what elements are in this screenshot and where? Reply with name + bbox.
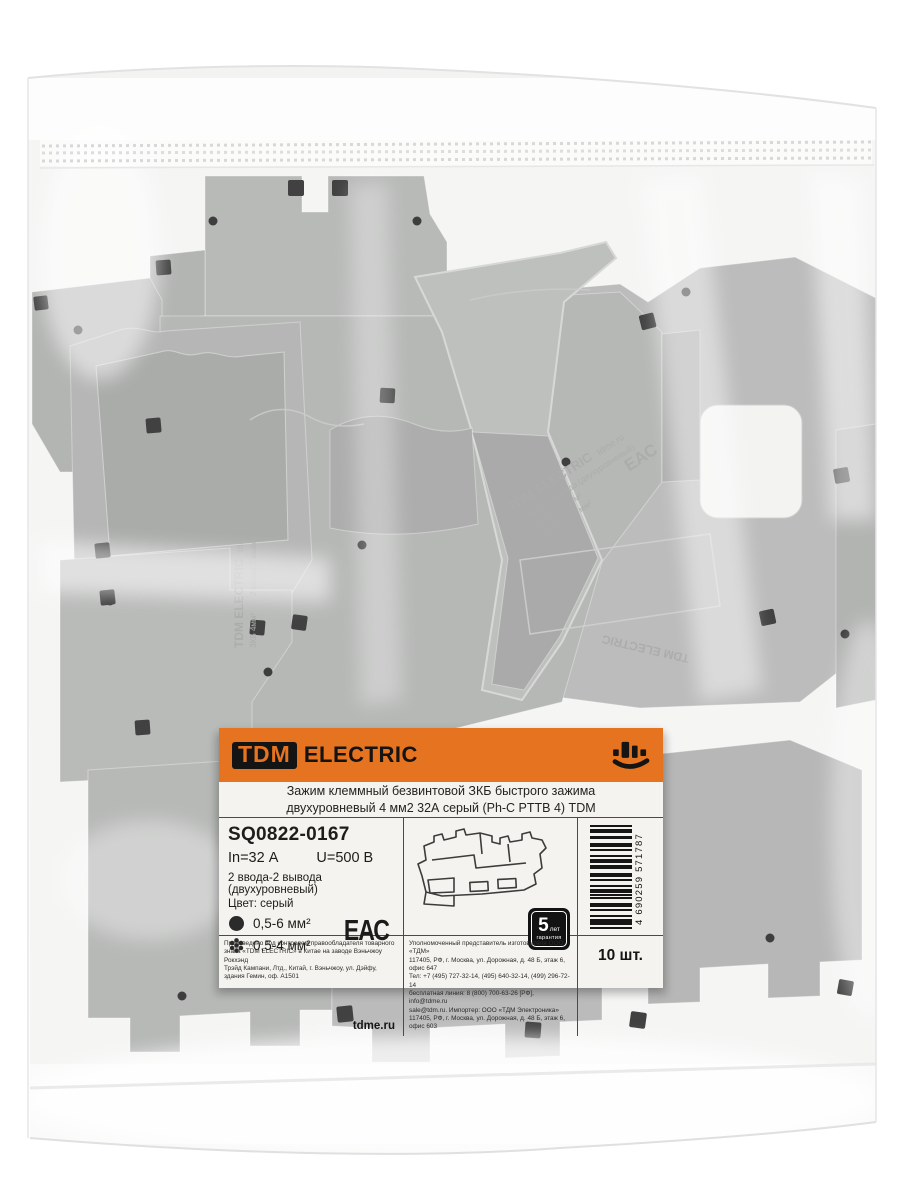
crimp-seal bbox=[40, 139, 874, 168]
color-text: Цвет: серый bbox=[228, 898, 394, 910]
label-specs-column: SQ0822-0167 In=32 А U=500 В 2 ввода-2 вы… bbox=[219, 818, 404, 954]
tdm-logo-text: ELECTRIC bbox=[304, 742, 418, 768]
label-barcode-column: 4 690259 571787 bbox=[578, 818, 663, 954]
product-photo: TDM ELECTRIC tdme.ru ЗКБ 4мм² 2 ввода-2 … bbox=[0, 0, 900, 1200]
config-text: 2 ввода-2 вывода (двухуровневый) bbox=[228, 872, 394, 896]
barcode: 4 690259 571787 bbox=[590, 825, 650, 933]
barcode-bars bbox=[590, 825, 632, 933]
product-title: Зажим клеммный безвинтовой ЗКБ быстрого … bbox=[219, 782, 663, 817]
website: tdme.ru bbox=[353, 1020, 395, 1032]
wire-range-solid: 0,5-6 мм² bbox=[253, 916, 311, 931]
tdm-logo-box: TDM bbox=[232, 742, 297, 769]
importer-note: Уполномоченный представитель изготовител… bbox=[404, 936, 578, 1036]
bag-bottom-fold bbox=[30, 1064, 876, 1154]
tdm-logo: TDM ELECTRIC bbox=[232, 742, 418, 769]
label-drawing-column: 5 лет гарантия bbox=[404, 818, 578, 954]
product-title-line1: Зажим клеммный безвинтовой ЗКБ быстрого … bbox=[219, 783, 663, 800]
rated-current: In=32 А bbox=[228, 850, 278, 866]
solid-wire-icon bbox=[228, 915, 245, 932]
sku-code: SQ0822-0167 bbox=[228, 824, 394, 846]
barcode-digits: 4 690259 571787 bbox=[634, 825, 648, 933]
product-title-line2: двухуровневый 4 мм2 32А серый (Ph-C PTTB… bbox=[219, 800, 663, 817]
rated-voltage: U=500 В bbox=[316, 850, 373, 866]
product-label: TDM ELECTRIC Зажим клеммный безвинтовой … bbox=[219, 728, 663, 988]
terminal-block-drawing bbox=[410, 824, 570, 912]
label-header: TDM ELECTRIC bbox=[219, 728, 663, 782]
tdm-smile-icon bbox=[612, 739, 650, 771]
manufacturer-note: Произведено под контролем правообладател… bbox=[219, 936, 404, 1036]
